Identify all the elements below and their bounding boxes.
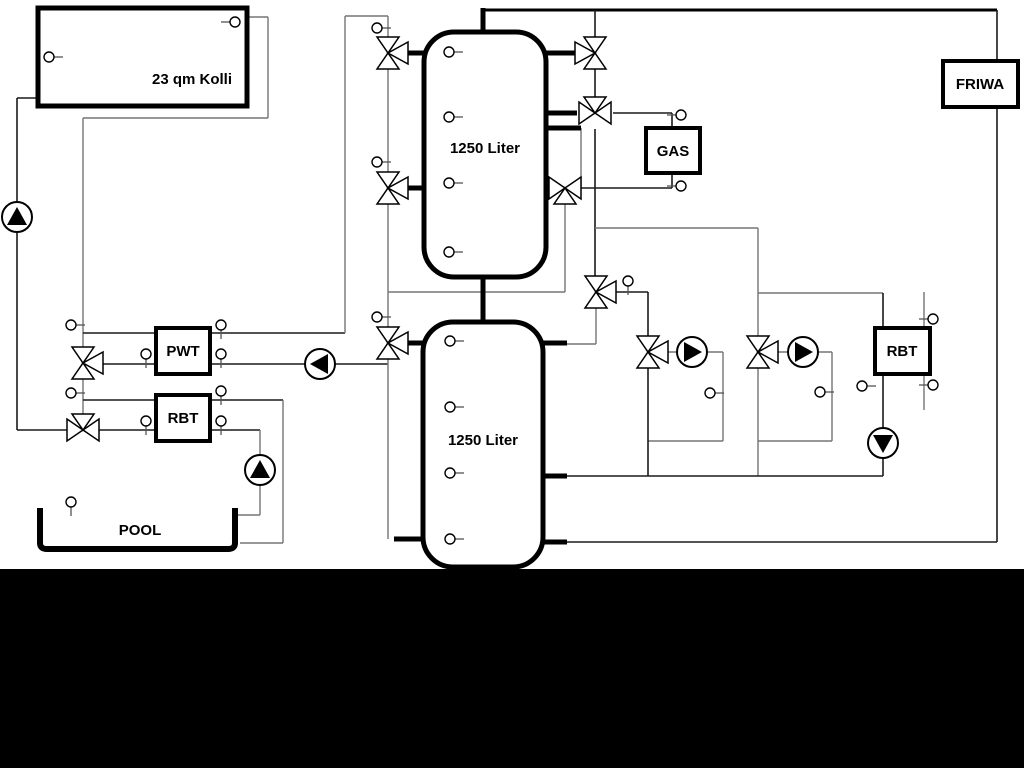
sensor-icon — [141, 416, 151, 435]
heating-pump-1 — [677, 337, 707, 367]
sensor-icon — [141, 349, 151, 368]
gas-label: GAS — [657, 143, 690, 160]
sensor-icon — [216, 386, 226, 405]
rbt-left-label: RBT — [168, 410, 199, 427]
three-way-valve — [637, 336, 668, 368]
three-way-valve — [579, 97, 611, 124]
black-band — [0, 569, 1024, 768]
sensor-icon — [66, 388, 85, 398]
sensor-icon — [815, 387, 834, 397]
friwa-label: FRIWA — [956, 76, 1004, 93]
three-way-valve — [575, 37, 606, 69]
tank-bottom-label: 1250 Liter — [448, 432, 518, 449]
three-way-valve — [585, 276, 616, 308]
three-way-valve — [67, 414, 99, 441]
three-way-valve — [377, 327, 408, 359]
three-way-valve — [72, 347, 103, 379]
pwt-pump — [305, 349, 335, 379]
hydraulic-schematic: 23 qm Kolli 1250 Liter 1250 Liter PWT RB… — [0, 0, 1024, 768]
solar-collector-box — [38, 8, 247, 106]
sensor-icon — [667, 181, 686, 191]
heating-pump-2 — [788, 337, 818, 367]
pool-sensor-icon — [66, 497, 76, 516]
sensor-icon — [216, 416, 226, 435]
sensor-icon — [919, 380, 938, 390]
sensor-icon — [705, 388, 724, 398]
rbt-right-pump — [868, 428, 898, 458]
sensor-icon — [667, 110, 686, 120]
schematic-canvas: 23 qm Kolli 1250 Liter 1250 Liter PWT RB… — [0, 0, 1024, 768]
sensor-icon — [216, 320, 226, 339]
pool-label: POOL — [119, 522, 162, 539]
sensor-icon — [66, 320, 85, 330]
collector-label: 23 qm Kolli — [152, 71, 232, 88]
three-way-valve — [377, 172, 408, 204]
solar-pump — [2, 202, 32, 232]
sensor-icon — [919, 314, 938, 324]
three-way-valve — [747, 336, 778, 368]
tank-top-label: 1250 Liter — [450, 140, 520, 157]
pwt-label: PWT — [166, 343, 199, 360]
pool-pump — [245, 455, 275, 485]
three-way-valve — [377, 37, 408, 69]
rbt-right-label: RBT — [887, 343, 918, 360]
three-way-valve — [549, 177, 581, 204]
sensor-icon — [857, 381, 876, 391]
sensor-icon — [216, 349, 226, 368]
